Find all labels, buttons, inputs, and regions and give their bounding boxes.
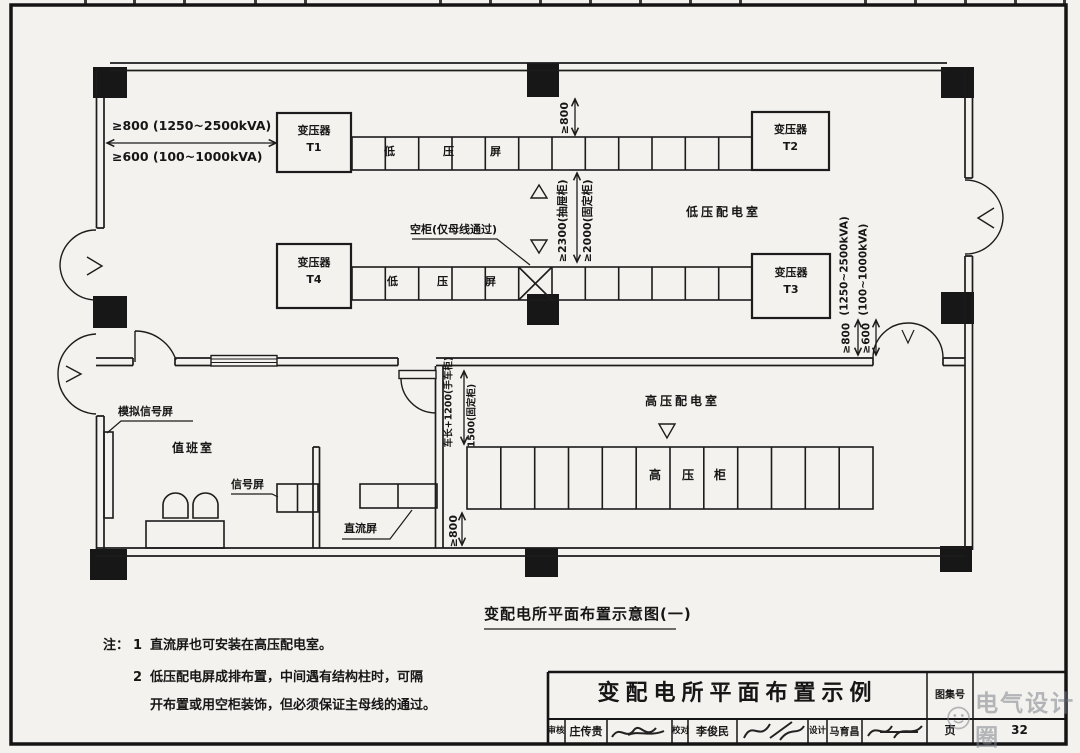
design-label: 设计 (808, 727, 827, 737)
note-number: 2 (133, 671, 142, 686)
note-text: 直流屏也可安装在高压配电室。 (150, 639, 332, 654)
hv-room-label: 高压配电室 (645, 395, 720, 409)
transformer-t3-label: 变压器 T3 (752, 264, 830, 296)
lv-panel-row-2 (352, 267, 752, 300)
design-name: 马育昌 (827, 727, 862, 739)
transformer-name: 变压器 (298, 256, 331, 269)
transformer-name: 变压器 (775, 266, 808, 279)
window-symbol (211, 356, 277, 367)
review-name: 庄传贵 (565, 726, 607, 739)
signal-panel-box (277, 484, 318, 512)
stool (163, 493, 188, 518)
page-number: 32 (973, 724, 1066, 738)
figure-caption: 变配电所平面布置示意图(一) (484, 606, 676, 623)
dim-hv-d1: ≥800 (447, 515, 460, 547)
hv-row-char: 压 (682, 469, 694, 483)
check-signature (744, 722, 804, 740)
lv-row1-char: 压 (443, 146, 454, 159)
transformer-id: T2 (752, 140, 829, 153)
stool (193, 493, 218, 518)
hv-room-double-door (873, 323, 943, 358)
dim-right-d1: ≥800 (840, 323, 853, 354)
equipment (104, 112, 873, 548)
transformer-id: T4 (277, 273, 351, 286)
dimension-lines (107, 99, 876, 545)
lv-row2-char: 低 (387, 276, 398, 289)
review-signature (612, 728, 664, 737)
desk (146, 521, 224, 548)
note-text: 低压配电屏成排布置，中间遇有结构柱时，可隔 (150, 671, 423, 686)
transformer-t1-label: 变压器 T1 (277, 122, 351, 154)
door-swing-chevron (978, 208, 994, 228)
left-double-door (60, 230, 102, 300)
duty-room-interior-door (135, 331, 176, 362)
triangle-down-marker (531, 240, 547, 253)
check-label: 校对 (672, 727, 688, 737)
dim-left-row2: ≥600 (100~1000kVA) (112, 150, 263, 164)
signatures (612, 722, 922, 740)
scanned-drawing-page: 低压配电室 高压配电室 值班室 变压器 T1 变压器 T2 变压器 T4 变压器… (0, 0, 1080, 753)
transformer-t2-label: 变压器 T2 (752, 121, 829, 153)
transformer-name: 变压器 (298, 124, 331, 137)
transformer-t4-label: 变压器 T4 (277, 254, 351, 286)
dim-aisle-fixed: ≥2000(固定柜) (581, 179, 594, 262)
title-block-title: 变配电所平面布置示例 (548, 681, 927, 706)
empty-cabinet-label: 空柜(仅母线通过) (410, 224, 497, 237)
dim-hv-aisle2: 1500(固定柜) (467, 384, 478, 448)
door-swing-chevron (66, 366, 81, 382)
page-border (11, 5, 1066, 744)
duty-room-exterior-door (58, 334, 96, 414)
signal-panel-label: 信号屏 (231, 479, 264, 492)
dim-right-kva2: (100~1000kVA) (857, 224, 870, 316)
dim-left-row1: ≥800 (1250~2500kVA) (112, 119, 271, 133)
check-name: 李俊民 (688, 726, 737, 739)
mimic-panel-label: 模拟信号屏 (118, 406, 173, 419)
lv-row2-char: 屏 (485, 276, 496, 289)
lv-room-label: 低压配电室 (686, 206, 761, 220)
mimic-panel-box (104, 432, 113, 518)
transformer-id: T1 (277, 141, 351, 154)
lv-panel-row-1 (352, 137, 752, 170)
notes-label: 注： (103, 639, 129, 654)
dim-aisle-drawer: ≥2300(抽屉柜) (556, 179, 569, 262)
hv-row-char: 柜 (714, 469, 726, 483)
signal-room-door (399, 371, 436, 414)
hv-row-char: 高 (649, 469, 661, 483)
right-double-door (965, 180, 1003, 254)
dim-right-kva1: (1250~2500kVA) (838, 216, 851, 315)
dim-right-d2: ≥600 (860, 323, 873, 354)
lv-row1-char: 低 (384, 146, 395, 159)
transformer-name: 变压器 (774, 123, 807, 136)
dim-top-mid: ≥800 (558, 102, 571, 134)
note-number: 1 (133, 639, 142, 654)
dc-panel-box (360, 484, 437, 508)
review-label: 审核 (547, 727, 565, 737)
door-swing-chevron (902, 330, 914, 343)
dim-hv-aisle1: 车长+1200(手车柜) (444, 357, 455, 448)
duty-room-label: 值班室 (172, 442, 214, 456)
dc-panel-label: 直流屏 (344, 523, 377, 536)
transformer-id: T3 (752, 283, 830, 296)
triangle-up-marker (531, 185, 547, 198)
lv-row1-char: 屏 (490, 146, 501, 159)
design-signature (868, 726, 922, 738)
lv-row2-char: 压 (437, 276, 448, 289)
hv-cabinet-row (467, 447, 873, 509)
note-text: 开布置或用空柜装饰，但必须保证主母线的通过。 (150, 699, 436, 714)
structural-columns (90, 63, 974, 580)
door-swing-chevron (87, 257, 102, 275)
page-label: 页 (927, 725, 973, 738)
atlas-number-label: 图集号 (927, 690, 973, 702)
triangle-down-marker (659, 424, 675, 438)
